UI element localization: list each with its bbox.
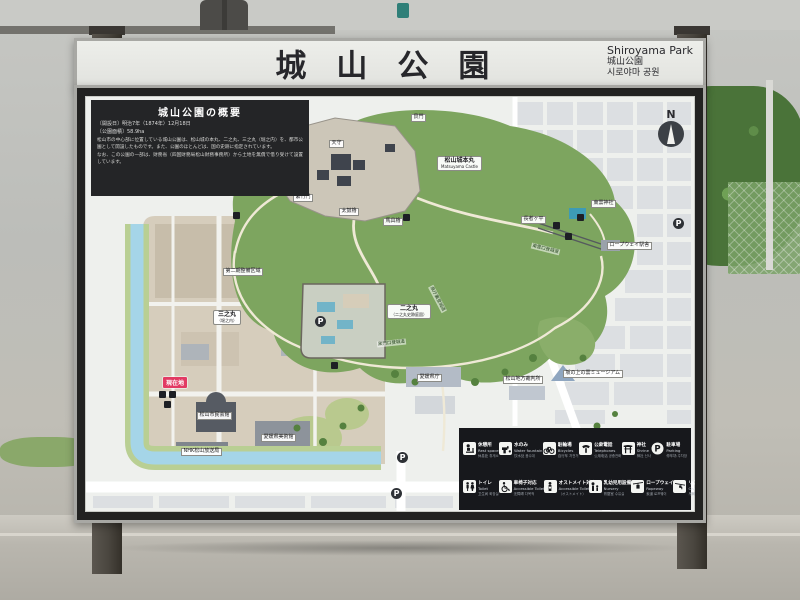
wheelchair-icon [499,480,512,493]
legend-item-toilet: トイレToilet卫生间 화장실 [463,480,499,496]
court-building [509,386,545,400]
map-face: 城山公園の概要 〔開設日〕明治7年（1874年）12月18日 〔公園面積〕58.… [85,96,695,512]
parking-circle-icon: P [651,442,664,455]
legend-item-shrine: 神社Shrine神社 신사 [622,442,651,458]
legend-item-ropeway: ロープウェイRopeway索道 로프웨이 [631,480,673,496]
legend-item-chairlift: リフトChair Lift吊椅 리프트 [673,480,695,496]
label-nhk: NHK松山放送局 [181,448,222,456]
label-sakanoue-museum: 坂の上の雲ミュージアム [563,370,623,378]
fountain-icon [499,442,512,455]
overview-box: 城山公園の概要 〔開設日〕明治7年（1874年）12月18日 〔公園面積〕58.… [91,100,309,196]
compass-dial [658,121,684,147]
park-title-japanese-small: 城山公園 [607,57,693,68]
compass-label: N [651,108,691,121]
label-ninomaru: 二之丸（二之丸史跡庭園） [387,304,431,319]
legend-item-telephone: 公衆電話Telephones公用电话 공중전화 [579,442,621,458]
label-shinonome-shrine: 東雲神社 [591,200,616,208]
legend-item-accessible: 車椅子対応Accessible Toilet无障碍 다목적 [499,480,544,496]
compass: N [651,108,691,147]
label-matsuyama-castle: 松山城本丸Matsuyama Castle [437,156,482,171]
label-bagu-yagura: 馬具櫓 [383,218,403,226]
park-title-translations: Shiroyama Park 城山公園 시로야마 공원 [607,44,693,79]
legend-item-rest: 休憩所Rest space休息处 휴게소 [463,442,499,458]
legend-item-bicycle: 駐輪場Bicycles自行车 자전거 [543,442,579,458]
nursery-icon [589,480,602,493]
legend-row-1: 休憩所Rest space休息处 휴게소 水のみWater fountain饮水… [463,442,687,458]
label-ushitora-gate: 艮門 [411,114,426,122]
ropeway-icon [631,480,644,493]
svg-text:P: P [655,444,661,454]
torii-icon [622,442,635,455]
overview-body-1: 松山市の中心部に位置している城山公園は、松山城の本丸、二之丸、三之丸（堀之内）を… [97,137,303,151]
label-phase2-area: 第二期整備区域 [223,268,263,276]
parking-icon: P [673,218,684,229]
overview-body-2: なお、この公園の一部は、財務省（四国財務局松山財務事務所）から土地を無償で借り受… [97,152,303,166]
parking-icon: P [391,488,402,499]
label-district-court: 松山地方裁判所 [503,376,543,384]
ostomate-icon [544,480,557,493]
compass-needle-icon [667,124,675,144]
legend-item-nursery: 乳幼児用設備Nursery育婴室 수유실 [589,480,632,496]
background-pole [222,0,227,30]
overview-area: 〔公園面積〕58.9ha [97,129,303,137]
legend-row-2: トイレToilet卫生间 화장실 車椅子対応Accessible Toilet无… [463,480,687,496]
label-ropeway-station: ロープウェイ駅舎 [607,242,652,250]
park-title-japanese: 城山公園 [275,41,519,86]
bench-icon [463,442,476,455]
parking-icon: P [315,316,326,327]
toilet-icon [463,480,476,493]
legend-item-ostomate: オストメイト対応Accessible Toilet（オストメイト） [544,480,589,496]
legend-item-water: 水のみWater fountain饮水处 음수대 [499,442,542,458]
legend-item-parking: P 駐車場Parking停车场 주차장 [651,442,687,458]
overview-title: 城山公園の概要 [97,104,303,119]
label-tenshu: 天守 [329,140,344,148]
title-board: 城山公園 Shiroyama Park 城山公園 시로야마 공원 [74,38,706,88]
park-title-english: Shiroyama Park [607,44,693,57]
label-sannomaru: 三之丸（堀之内） [213,310,241,325]
background-object [397,3,409,18]
map-board: 城山公園の概要 〔開設日〕明治7年（1874年）12月18日 〔公園面積〕58.… [74,85,706,523]
legend-box: 休憩所Rest space休息处 휴게소 水のみWater fountain饮水… [459,428,691,510]
utility-pole [766,80,773,270]
chainlink-fence [728,182,800,274]
chairlift-icon [673,480,686,493]
telephone-icon [579,442,592,455]
bicycle-icon [543,442,556,455]
you-are-here-badge: 現在地 [163,377,187,388]
ninomaru-complex [301,284,385,358]
label-art-museum: 愛媛県美術館 [261,434,296,442]
sign-shadow [105,540,695,556]
background-roofline [0,26,335,34]
label-taiko-yagura: 太鼓櫓 [339,208,359,216]
overview-open-date: 〔開設日〕明治7年（1874年）12月18日 [97,121,303,129]
label-civic-hall: 松山市民会館 [197,412,232,420]
parking-icon: P [397,452,408,463]
label-pref-office: 愛媛県庁 [417,374,442,382]
park-title-korean: 시로야마 공원 [607,68,693,79]
label-chojagahira: 長者ヶ平 [521,216,546,224]
